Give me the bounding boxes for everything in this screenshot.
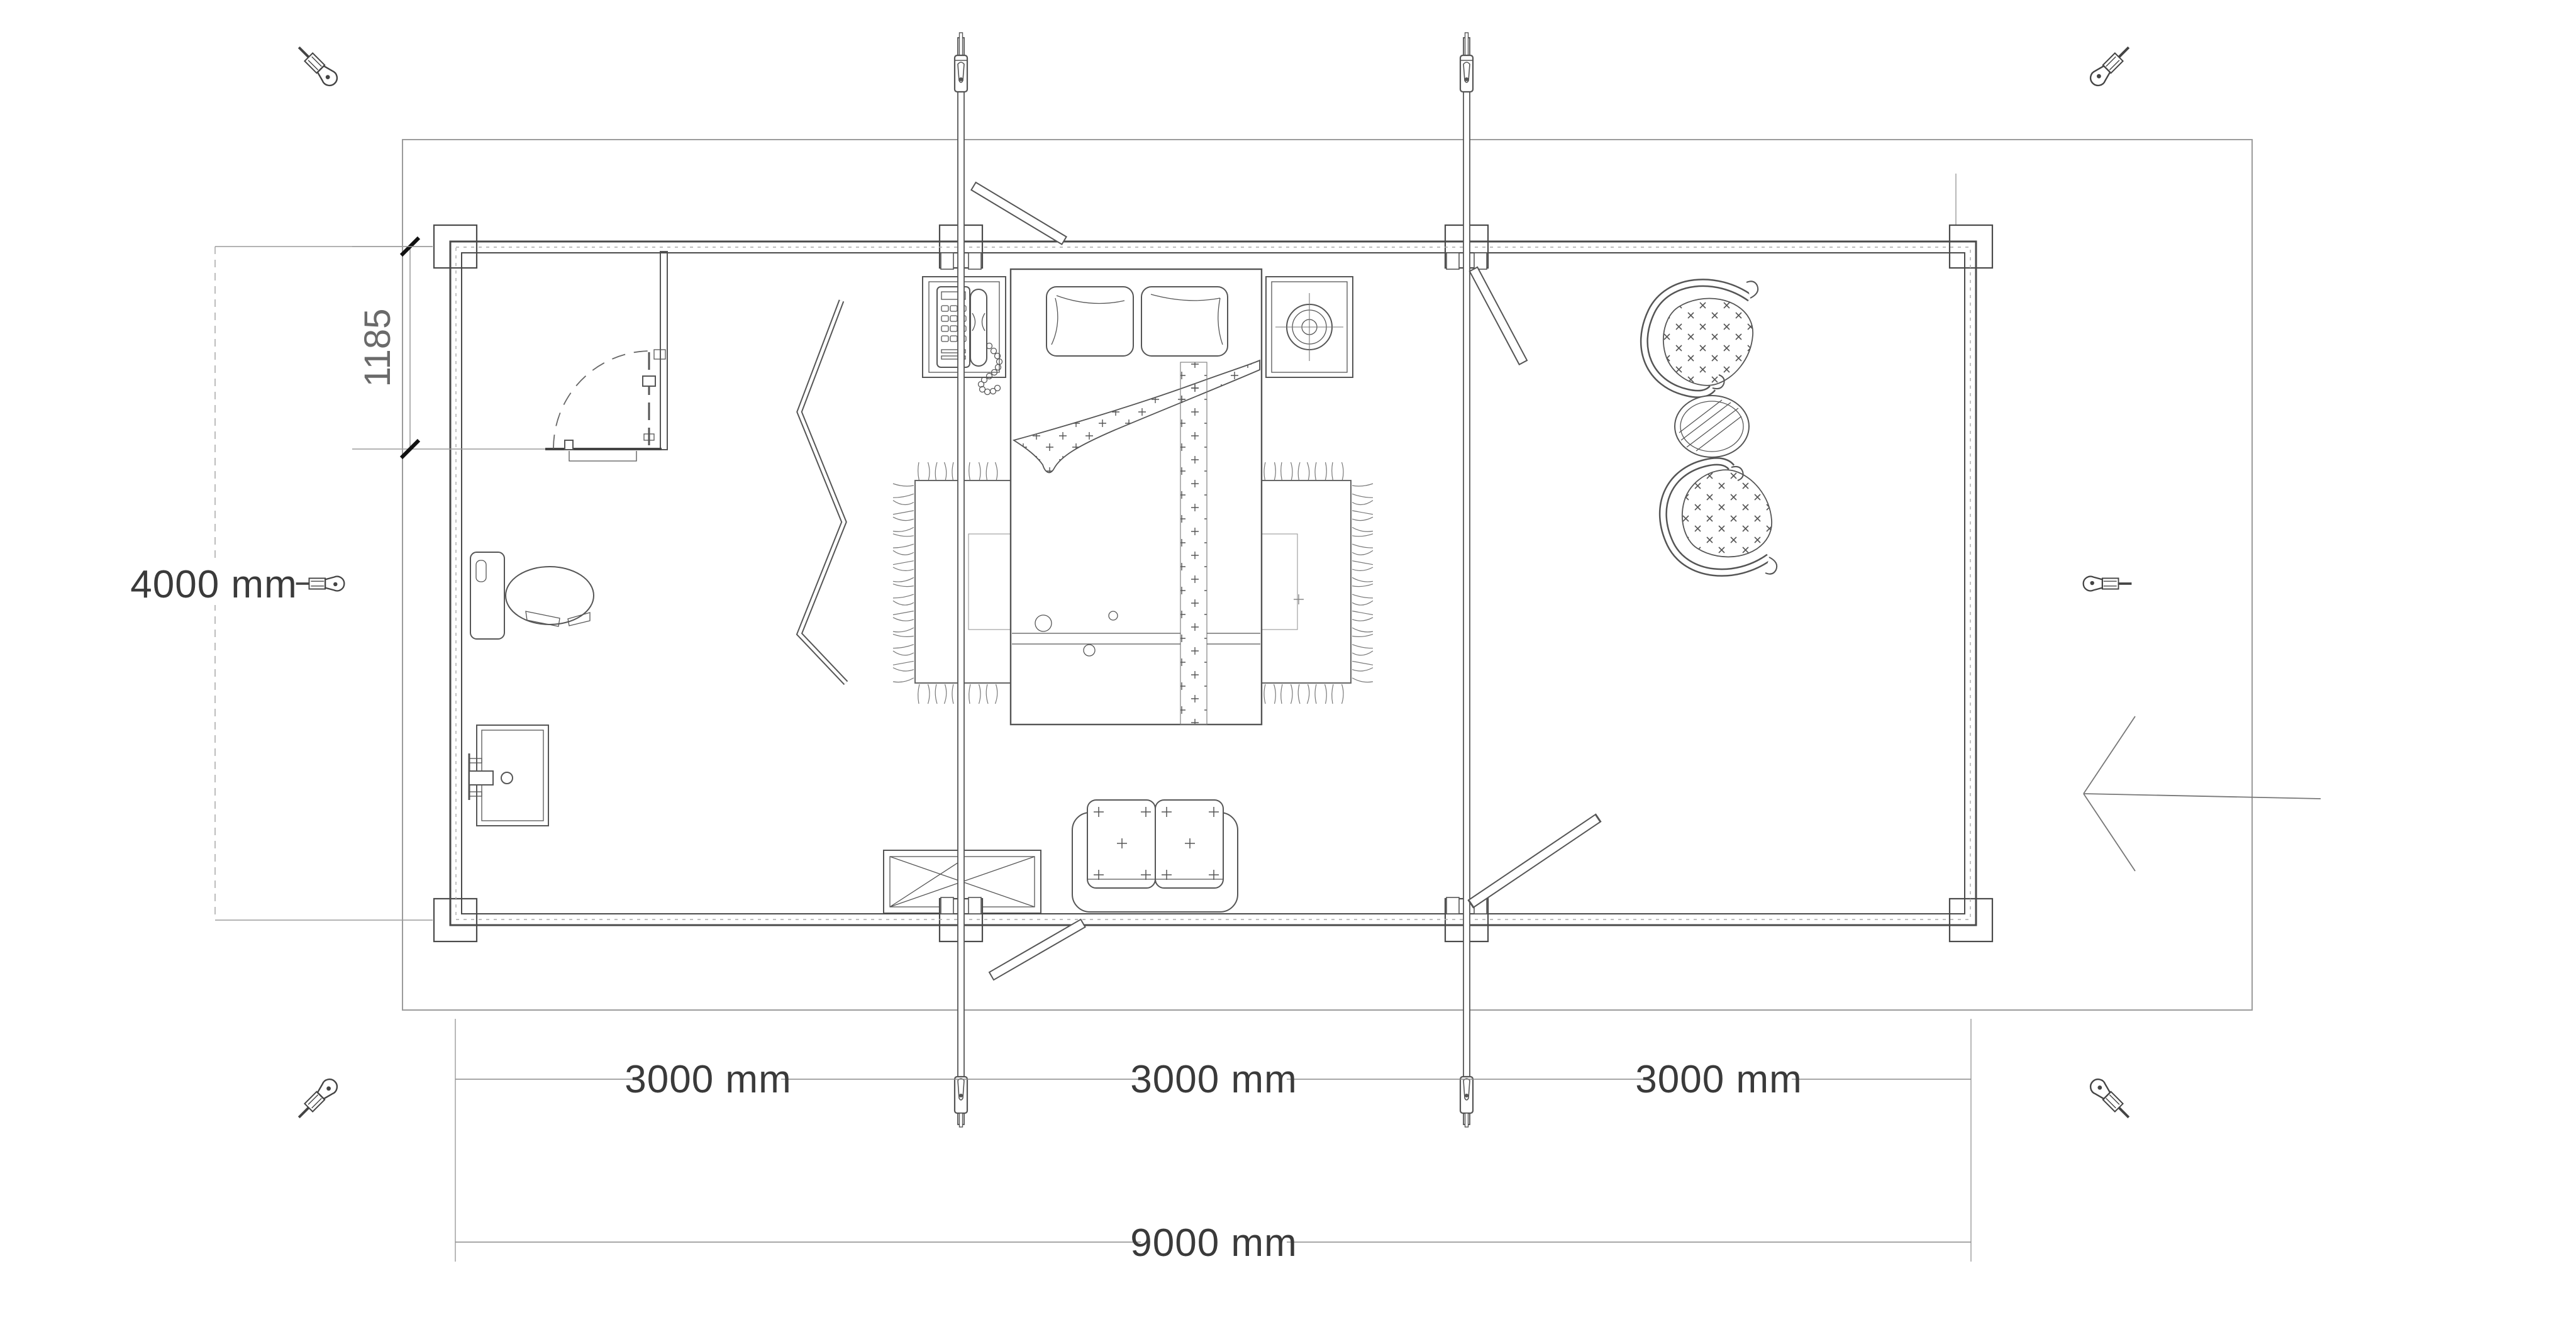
- rug-fringe-tuft: [1352, 645, 1373, 648]
- rug-fringe-tuft: [893, 528, 914, 532]
- rug-fringe-tuft: [1274, 684, 1276, 704]
- rug-fringe-tuft: [1342, 684, 1344, 704]
- screw-icon-top-left: [294, 42, 340, 89]
- round-table: [1675, 396, 1749, 457]
- rug-fringe-tuft: [1307, 462, 1309, 482]
- rug-fringe-tuft: [1325, 684, 1327, 704]
- rug-fringe-tuft: [893, 651, 914, 655]
- corner-post: [1950, 225, 1992, 268]
- dimension-label-bay-3: 3000 mm: [1635, 1058, 1802, 1101]
- rug-fringe-tuft: [1352, 534, 1373, 536]
- toilet: [470, 552, 594, 639]
- rug-fringe-tuft: [928, 684, 930, 704]
- rug-fringe-tuft: [1352, 651, 1373, 655]
- rug-fringe-tuft: [969, 462, 970, 482]
- rug-fringe-tuft: [893, 668, 914, 671]
- rug-fringe-tuft: [1264, 684, 1265, 704]
- floor-plan-page: 1185 4000 mm 3000 mm 3000 mm 3000 mm 900…: [0, 0, 2576, 1327]
- brace-plank-top-left: [971, 182, 1066, 245]
- dimension-label-bay-1: 3000 mm: [625, 1058, 791, 1101]
- rug-fringe-tuft: [893, 561, 914, 565]
- lounge-chair-top: [1644, 281, 1758, 394]
- rug-fringe-tuft: [893, 577, 914, 582]
- rug-fringe-tuft: [1352, 628, 1373, 632]
- rug-fringe-tuft: [1307, 684, 1309, 704]
- bathroom-partition-wall: [660, 252, 667, 450]
- rug-fringe-tuft: [952, 462, 953, 482]
- rug-fringe-tuft: [1352, 668, 1373, 671]
- rug-fringe-tuft: [1352, 561, 1373, 565]
- rug-fringe-tuft: [986, 684, 988, 704]
- door-swing-arc: [553, 351, 651, 448]
- screw-icon-top-right: [2087, 42, 2134, 89]
- floor-plan-canvas: 1185 4000 mm 3000 mm 3000 mm 3000 mm 900…: [0, 0, 2576, 1327]
- rug-fringe-tuft: [918, 684, 919, 704]
- rug-fringe-tuft: [1352, 528, 1373, 532]
- rug-fringe-tuft: [1352, 661, 1373, 665]
- rug-fringe-tuft: [1352, 584, 1373, 587]
- rug-fringe-tuft: [893, 544, 914, 548]
- rug-fringe-tuft: [996, 684, 997, 704]
- toilet-tank: [470, 552, 504, 639]
- rug-fringe-tuft: [893, 594, 914, 598]
- rug-fringe-tuft: [893, 511, 914, 514]
- lounge-chair-bottom: [1663, 462, 1777, 574]
- rug-fringe-tuft: [893, 484, 914, 486]
- rug-fringe-tuft: [893, 634, 914, 636]
- corner-post: [434, 899, 477, 941]
- pillow-right: [1141, 287, 1228, 356]
- rug-fringe-tuft: [1352, 544, 1373, 548]
- rug-fringe-tuft: [1298, 462, 1300, 482]
- rug-fringe-tuft: [893, 567, 914, 570]
- rug-fringe-tuft: [1315, 462, 1316, 482]
- rug-fringe-tuft: [996, 462, 997, 482]
- door-jamb: [565, 440, 573, 450]
- rug-fringe-tuft: [1352, 517, 1373, 520]
- rug-fringe-tuft: [1352, 567, 1373, 570]
- rug-fringe-tuft: [1274, 462, 1276, 482]
- rug-fringe-tuft: [1352, 501, 1373, 505]
- rug-fringe-tuft: [893, 678, 914, 682]
- rug-fringe-tuft: [893, 584, 914, 587]
- loveseat-sofa: [1072, 800, 1238, 912]
- rug-fringe-tuft: [893, 550, 914, 555]
- rug-fringe-tuft: [1298, 684, 1300, 704]
- rug-fringe-tuft: [918, 462, 919, 482]
- rug-fringe-tuft: [893, 534, 914, 536]
- corner-post: [434, 225, 477, 268]
- rug-fringe-tuft: [935, 462, 937, 482]
- rug-fringe-tuft: [893, 661, 914, 665]
- rug-fringe-tuft: [1352, 601, 1373, 605]
- folding-screen: [799, 301, 846, 683]
- rug-fringe-tuft: [986, 462, 988, 482]
- rug-fringe-tuft: [928, 462, 930, 482]
- rug-fringe-tuft: [893, 645, 914, 648]
- rug-fringe-tuft: [979, 684, 981, 704]
- rug-fringe-tuft: [935, 684, 937, 704]
- rug-fringe-tuft: [1291, 462, 1293, 482]
- rug-fringe-tuft: [1342, 462, 1344, 482]
- bathroom-door: [553, 350, 665, 448]
- washbasin: [469, 725, 548, 826]
- rug-fringe-tuft: [893, 628, 914, 632]
- lamp-nightstand: [1266, 277, 1353, 377]
- dimension-label-bathroom-depth: 1185: [357, 309, 398, 387]
- brace-plank-terrace-top: [1470, 267, 1527, 365]
- double-bed: [1011, 269, 1262, 725]
- rug-fringe-tuft: [1264, 462, 1265, 482]
- rug-fringe-tuft: [945, 684, 947, 704]
- rug-fringe-tuft: [893, 611, 914, 615]
- rug-fringe-tuft: [893, 501, 914, 505]
- rug-fringe-tuft: [893, 618, 914, 621]
- rug-fringe-tuft: [1281, 684, 1282, 704]
- dimension-label-depth: 4000 mm: [130, 563, 297, 606]
- door-frame: [569, 451, 636, 461]
- rug-fringe-tuft: [1352, 618, 1373, 621]
- rug-fringe-tuft: [1332, 462, 1333, 482]
- rug-fringe-tuft: [945, 462, 947, 482]
- rug-fringe-tuft: [1352, 678, 1373, 682]
- rug-fringe-tuft: [1352, 577, 1373, 582]
- corner-post: [1950, 899, 1992, 941]
- rug-fringe-tuft: [1332, 684, 1333, 704]
- rug-fringe-tuft: [1352, 594, 1373, 598]
- brace-plank-terrace-bottom: [1468, 814, 1601, 908]
- screw-icon-right: [2084, 577, 2132, 591]
- screw-icon-bottom-left: [294, 1076, 340, 1123]
- entrance-arrow: [2084, 716, 2321, 871]
- rug-fringe-tuft: [979, 462, 981, 482]
- rug-fringe-tuft: [1352, 611, 1373, 615]
- rug-fringe-tuft: [893, 517, 914, 520]
- screw-icon-bottom-right: [2087, 1076, 2134, 1123]
- rug-fringe-tuft: [1352, 550, 1373, 555]
- rug-fringe-tuft: [893, 601, 914, 605]
- rug-fringe-tuft: [893, 494, 914, 497]
- rug-fringe-tuft: [1281, 462, 1282, 482]
- rug-fringe-tuft: [1352, 511, 1373, 514]
- rug-fringe-tuft: [1291, 684, 1293, 704]
- dimension-1185: 1185: [352, 238, 545, 458]
- rug-fringe-tuft: [1352, 484, 1373, 486]
- rug-fringe-tuft: [1325, 462, 1327, 482]
- rug-fringe-tuft: [1315, 684, 1316, 704]
- rug-fringe-tuft: [969, 684, 970, 704]
- screw-icon-left: [296, 577, 345, 591]
- rug-fringe-tuft: [1352, 494, 1373, 497]
- rug-fringe-tuft: [1352, 634, 1373, 636]
- bathroom: [469, 252, 667, 826]
- dimension-label-total-width: 9000 mm: [1130, 1221, 1297, 1265]
- dimension-label-bay-2: 3000 mm: [1130, 1058, 1297, 1101]
- dimension-9000: 9000 mm: [455, 1221, 1971, 1265]
- brace-plank-bottom: [989, 919, 1085, 980]
- telephone-handset: [970, 289, 987, 366]
- pillow-left: [1046, 287, 1133, 356]
- rug-fringe-tuft: [952, 684, 953, 704]
- duvet-runner: [1180, 362, 1207, 725]
- storm-brace-rod-right: [1460, 33, 1473, 1127]
